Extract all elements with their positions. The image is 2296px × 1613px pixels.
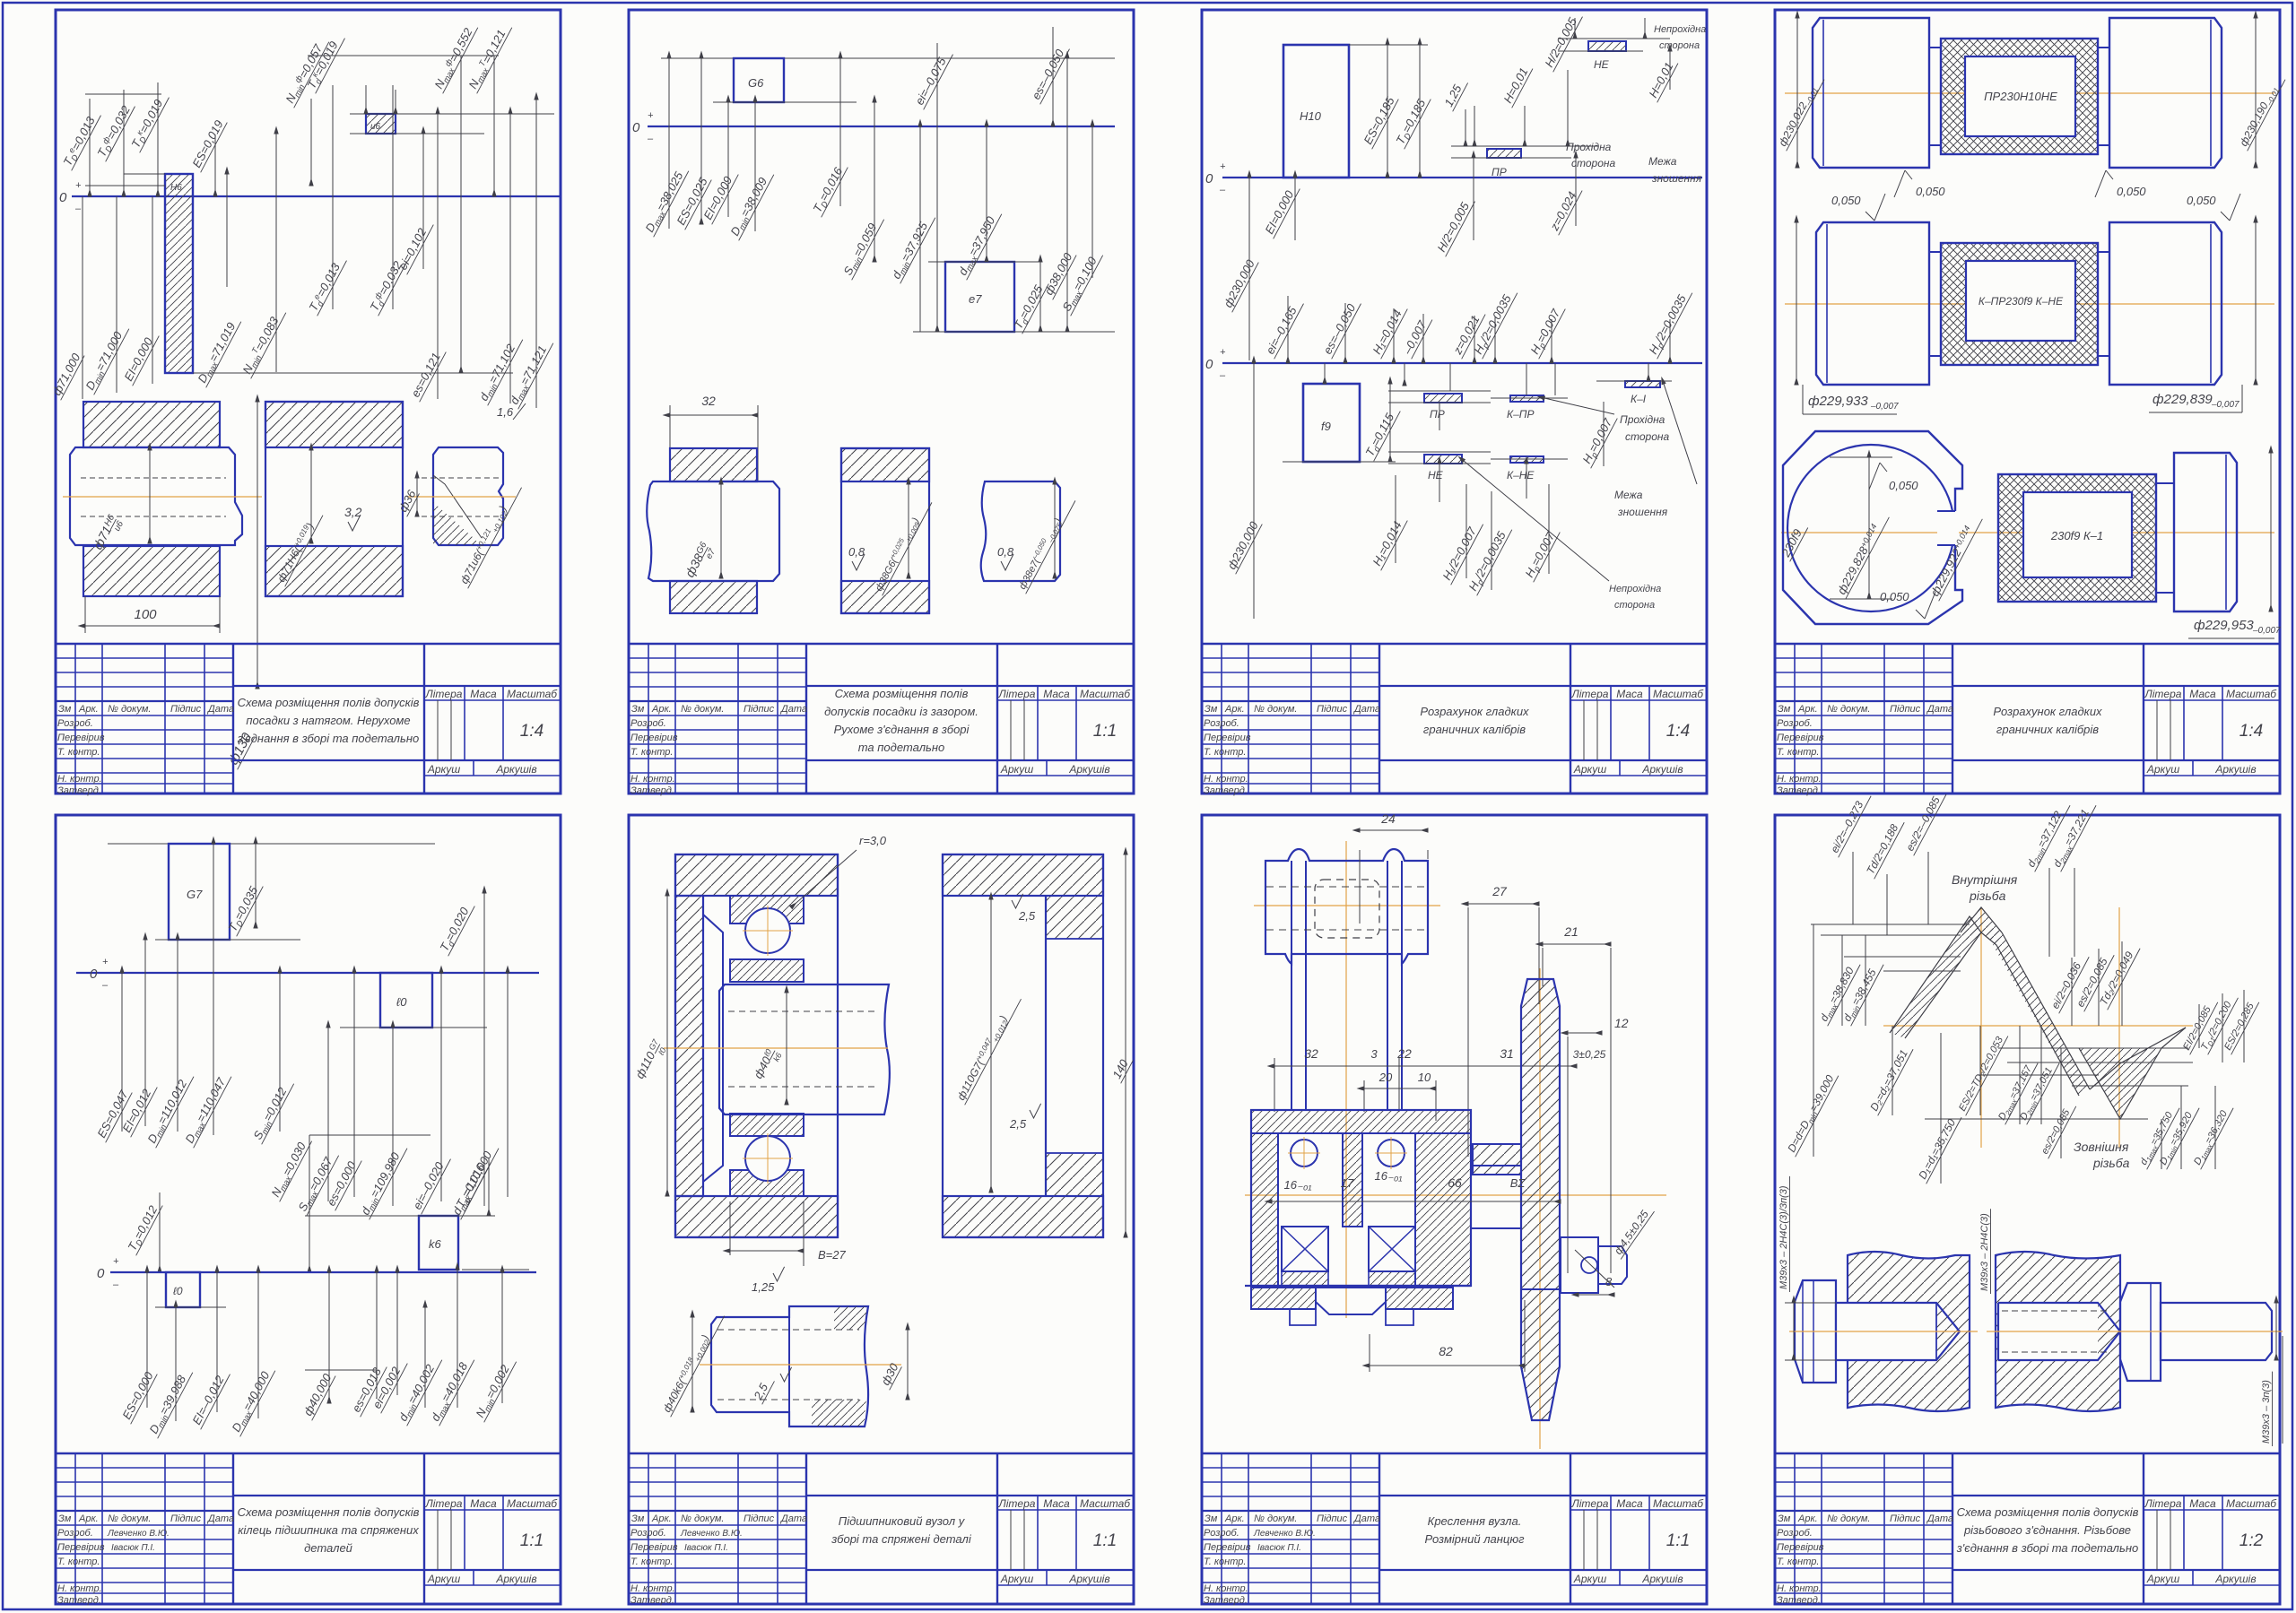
svg-text:Літера: Літера xyxy=(998,688,1036,700)
svg-text:0,050: 0,050 xyxy=(1831,194,1861,207)
svg-text:К–ПР: К–ПР xyxy=(1507,408,1534,421)
svg-text:Дата: Дата xyxy=(206,1513,234,1524)
svg-text:Т. контр.: Т. контр. xyxy=(1204,747,1246,758)
svg-text:Затверд.: Затверд. xyxy=(1777,785,1821,796)
svg-text:Прохідна: Прохідна xyxy=(1620,413,1665,426)
svg-text:Масштаб: Масштаб xyxy=(507,688,558,700)
svg-text:Зм: Зм xyxy=(1205,704,1218,715)
svg-text:Літера: Літера xyxy=(2144,688,2182,700)
svg-text:Н10: Н10 xyxy=(1300,109,1322,123)
svg-text:Масштаб: Масштаб xyxy=(1080,1497,1131,1510)
svg-text:–: – xyxy=(74,204,82,214)
svg-text:Дата: Дата xyxy=(206,704,234,715)
svg-text:2,5: 2,5 xyxy=(1009,1117,1027,1131)
svg-text:Н. контр.: Н. контр. xyxy=(1204,1583,1248,1594)
svg-text:Дата: Дата xyxy=(779,1513,807,1524)
svg-text:Аркушів: Аркушів xyxy=(1641,763,1683,776)
svg-text:Межа: Межа xyxy=(1648,155,1677,168)
svg-text:66: 66 xyxy=(1448,1175,1462,1190)
svg-text:НЕ: НЕ xyxy=(1594,58,1610,71)
svg-text:Левченко В.Ю.: Левченко В.Ю. xyxy=(1253,1529,1316,1539)
svg-text:Аркуш: Аркуш xyxy=(2146,763,2179,776)
svg-text:з'єднання в зборі та подетальн: з'єднання в зборі та подетально xyxy=(237,732,419,745)
svg-text:27: 27 xyxy=(1492,884,1508,898)
svg-text:Підпис: Підпис xyxy=(1890,1513,1921,1524)
svg-text:Літера: Літера xyxy=(1571,1497,1609,1510)
svg-text:Т. контр.: Т. контр. xyxy=(1204,1557,1246,1567)
svg-text:Розрахунок гладких: Розрахунок гладких xyxy=(1420,705,1529,718)
svg-text:Дата: Дата xyxy=(779,704,807,715)
svg-text:Розроб.: Розроб. xyxy=(1204,718,1239,729)
svg-text:0,050: 0,050 xyxy=(2117,185,2146,198)
svg-text:0,8: 0,8 xyxy=(848,545,865,559)
svg-text:Арк.: Арк. xyxy=(1224,1513,1245,1524)
svg-text:Перевірив: Перевірив xyxy=(1204,733,1251,743)
svg-text:Левченко В.Ю.: Левченко В.Ю. xyxy=(107,1529,170,1539)
svg-text:Розрахунок гладких: Розрахунок гладких xyxy=(1993,705,2102,718)
svg-text:ф229,839: ф229,839 xyxy=(2152,392,2213,407)
svg-text:–: – xyxy=(1219,370,1226,381)
svg-text:Т. контр.: Т. контр. xyxy=(1777,1557,1819,1567)
svg-text:16₋₀₁: 16₋₀₁ xyxy=(1284,1178,1312,1192)
svg-text:Маса: Маса xyxy=(2189,1497,2216,1510)
svg-text:+: + xyxy=(648,110,654,121)
svg-text:Н. контр.: Н. контр. xyxy=(631,1583,675,1594)
svg-text:В=27: В=27 xyxy=(818,1248,846,1262)
svg-text:–: – xyxy=(112,1279,119,1290)
svg-text:Розроб.: Розроб. xyxy=(631,1528,666,1539)
svg-text:+: + xyxy=(1220,347,1226,358)
svg-text:граничних калібрів: граничних калібрів xyxy=(1996,723,2099,736)
svg-text:16₋₀₁: 16₋₀₁ xyxy=(1375,1169,1403,1183)
svg-text:0: 0 xyxy=(59,190,67,205)
svg-text:17: 17 xyxy=(1341,1176,1354,1190)
svg-text:Підпис: Підпис xyxy=(1890,704,1921,715)
svg-text:№ докум.: № докум. xyxy=(108,704,151,715)
svg-text:Рухоме з'єднання в зборі: Рухоме з'єднання в зборі xyxy=(834,723,970,736)
svg-text:230f9 К–1: 230f9 К–1 xyxy=(2050,529,2103,542)
svg-text:Аркуш: Аркуш xyxy=(2146,1573,2179,1585)
svg-text:допусків посадки із зазором.: допусків посадки із зазором. xyxy=(824,705,978,718)
svg-text:деталей: деталей xyxy=(304,1541,352,1555)
svg-text:0,8: 0,8 xyxy=(997,545,1014,559)
svg-text:ВΣ: ВΣ xyxy=(1510,1176,1526,1190)
svg-text:0: 0 xyxy=(97,1266,105,1281)
svg-text:Аркушів: Аркушів xyxy=(1641,1573,1683,1585)
svg-text:зборі та спряжені деталі: зборі та спряжені деталі xyxy=(831,1532,972,1546)
svg-text:граничних калібрів: граничних калібрів xyxy=(1423,723,1526,736)
svg-text:Аркуш: Аркуш xyxy=(1573,763,1606,776)
svg-text:Підпис: Підпис xyxy=(744,1513,775,1524)
svg-text:ф229,933: ф229,933 xyxy=(1808,394,1868,409)
svg-text:Маса: Маса xyxy=(1043,688,1070,700)
svg-text:Івасюк П.І.: Івасюк П.І. xyxy=(1257,1543,1301,1553)
svg-text:Затверд.: Затверд. xyxy=(631,785,674,796)
svg-text:сторона: сторона xyxy=(1659,40,1700,51)
svg-text:82: 82 xyxy=(1439,1344,1453,1358)
svg-text:посадки з натягом. Нерухоме: посадки з натягом. Нерухоме xyxy=(246,714,410,727)
svg-text:Затверд.: Затверд. xyxy=(1204,785,1248,796)
svg-text:М39х3 – 3п(3): М39х3 – 3п(3) xyxy=(2261,1380,2272,1444)
svg-text:кілець підшипника та спряжених: кілець підшипника та спряжених xyxy=(238,1523,419,1537)
svg-text:Н. контр.: Н. контр. xyxy=(57,1583,102,1594)
svg-text:Розмірний ланцюг: Розмірний ланцюг xyxy=(1424,1532,1525,1546)
svg-text:ПР: ПР xyxy=(1492,166,1507,178)
svg-text:№ докум.: № докум. xyxy=(1827,1513,1870,1524)
svg-text:100: 100 xyxy=(134,607,157,622)
svg-text:№ докум.: № докум. xyxy=(681,704,724,715)
svg-text:Аркушів: Аркушів xyxy=(2214,1573,2256,1585)
svg-text:3: 3 xyxy=(1370,1047,1378,1061)
svg-text:ПР230Н10НЕ: ПР230Н10НЕ xyxy=(1984,90,2057,103)
svg-text:10: 10 xyxy=(1418,1071,1431,1084)
svg-text:К–І: К–І xyxy=(1631,393,1647,405)
svg-text:Маса: Маса xyxy=(470,688,497,700)
svg-text:Зм: Зм xyxy=(1778,704,1791,715)
svg-text:К–НЕ: К–НЕ xyxy=(1507,469,1535,481)
svg-text:Масштаб: Масштаб xyxy=(1653,1497,1704,1510)
svg-text:№ докум.: № докум. xyxy=(1254,1513,1297,1524)
svg-text:0: 0 xyxy=(1205,357,1213,372)
svg-text:1:1: 1:1 xyxy=(1093,722,1117,741)
svg-text:Арк.: Арк. xyxy=(651,1513,672,1524)
svg-text:Зм: Зм xyxy=(58,704,72,715)
svg-text:0,050: 0,050 xyxy=(1916,185,1945,198)
svg-text:–0,007: –0,007 xyxy=(1870,402,1899,412)
svg-text:Дата: Дата xyxy=(1352,1513,1380,1524)
svg-text:різьба: різьба xyxy=(2092,1156,2130,1170)
svg-text:Перевірив: Перевірив xyxy=(1777,733,1824,743)
svg-text:Підпис: Підпис xyxy=(170,704,202,715)
svg-text:21: 21 xyxy=(1563,924,1578,939)
svg-text:Перевірив: Перевірив xyxy=(1204,1542,1251,1553)
svg-text:Зм: Зм xyxy=(631,1513,645,1524)
svg-text:Масштаб: Масштаб xyxy=(1653,688,1704,700)
svg-text:Зм: Зм xyxy=(631,704,645,715)
svg-text:№ докум.: № докум. xyxy=(108,1513,151,1524)
svg-text:та подетально: та подетально xyxy=(858,741,945,754)
svg-text:Літера: Літера xyxy=(425,1497,463,1510)
svg-text:№ докум.: № докум. xyxy=(1254,704,1297,715)
svg-text:Маса: Маса xyxy=(1616,1497,1643,1510)
svg-text:сторона: сторона xyxy=(1571,157,1615,169)
svg-text:24: 24 xyxy=(1380,811,1396,826)
svg-text:Т. контр.: Т. контр. xyxy=(631,747,673,758)
svg-text:Підшипниковий вузол у: Підшипниковий вузол у xyxy=(839,1514,966,1528)
svg-text:сторона: сторона xyxy=(1625,430,1669,443)
svg-text:Н. контр.: Н. контр. xyxy=(631,774,675,785)
svg-text:Т. контр.: Т. контр. xyxy=(57,747,100,758)
svg-text:20: 20 xyxy=(1378,1071,1393,1084)
svg-text:0,050: 0,050 xyxy=(1880,590,1909,603)
svg-text:Н. контр.: Н. контр. xyxy=(1777,1583,1822,1594)
svg-text:Аркуш: Аркуш xyxy=(427,1573,460,1585)
svg-text:Арк.: Арк. xyxy=(1797,704,1818,715)
svg-text:№ докум.: № докум. xyxy=(1827,704,1870,715)
svg-text:Левченко В.Ю.: Левченко В.Ю. xyxy=(680,1529,743,1539)
svg-text:Літера: Літера xyxy=(998,1497,1036,1510)
svg-text:Івасюк П.І.: Івасюк П.І. xyxy=(684,1543,728,1553)
svg-text:Н. контр.: Н. контр. xyxy=(1204,774,1248,785)
svg-text:Дата: Дата xyxy=(1352,704,1380,715)
svg-text:k6: k6 xyxy=(429,1237,442,1251)
svg-text:Маса: Маса xyxy=(1616,688,1643,700)
svg-text:Розроб.: Розроб. xyxy=(57,1528,93,1539)
svg-text:Схема розміщення полів допускі: Схема розміщення полів допусків xyxy=(1957,1505,2139,1519)
svg-text:е7: е7 xyxy=(969,292,982,306)
svg-text:31: 31 xyxy=(1500,1046,1514,1061)
svg-text:Аркуш: Аркуш xyxy=(427,763,460,776)
svg-text:ℓ0: ℓ0 xyxy=(396,995,407,1009)
svg-text:Аркушів: Аркушів xyxy=(2214,763,2256,776)
svg-text:Підпис: Підпис xyxy=(1317,704,1348,715)
svg-text:Івасюк П.І.: Івасюк П.І. xyxy=(111,1543,155,1553)
svg-text:Аркушів: Аркушів xyxy=(1068,763,1109,776)
svg-text:Т. контр.: Т. контр. xyxy=(631,1557,673,1567)
svg-text:–: – xyxy=(1219,185,1226,195)
svg-text:+: + xyxy=(1220,161,1226,172)
svg-text:Масштаб: Масштаб xyxy=(2226,1497,2277,1510)
svg-text:–0,007: –0,007 xyxy=(2211,400,2239,410)
svg-text:Зм: Зм xyxy=(58,1513,72,1524)
svg-text:різьба: різьба xyxy=(1969,889,2006,903)
svg-text:К–ПР230f9 К–НЕ: К–ПР230f9 К–НЕ xyxy=(1979,295,2064,308)
svg-text:Літера: Літера xyxy=(2144,1497,2182,1510)
svg-text:Арк.: Арк. xyxy=(651,704,672,715)
svg-text:Н6: Н6 xyxy=(170,183,182,193)
svg-text:М39х3 – 2Н4С(3)/3п(3): М39х3 – 2Н4С(3)/3п(3) xyxy=(1779,1185,1789,1289)
svg-text:0,050: 0,050 xyxy=(1889,479,1918,492)
svg-text:1:4: 1:4 xyxy=(520,722,544,741)
svg-text:ПР: ПР xyxy=(1430,408,1445,421)
svg-text:Зовнішня: Зовнішня xyxy=(2074,1140,2129,1154)
svg-text:Перевірив: Перевірив xyxy=(1777,1542,1824,1553)
svg-text:–: – xyxy=(101,980,109,991)
svg-text:з'єднання в зборі та подетальн: з'єднання в зборі та подетально xyxy=(1956,1541,2138,1555)
svg-text:Дата: Дата xyxy=(1926,1513,1953,1524)
svg-text:Масштаб: Масштаб xyxy=(1080,688,1131,700)
svg-text:Перевірив: Перевірив xyxy=(631,1542,678,1553)
svg-text:f9: f9 xyxy=(1321,420,1331,433)
svg-text:Арк.: Арк. xyxy=(78,704,99,715)
svg-text:Літера: Літера xyxy=(1571,688,1609,700)
svg-text:Розроб.: Розроб. xyxy=(57,718,93,729)
svg-text:r=3,0: r=3,0 xyxy=(859,834,887,847)
svg-text:0: 0 xyxy=(90,967,98,982)
svg-text:Аркушів: Аркушів xyxy=(495,763,536,776)
svg-text:М39х3 – 2Н4С(3): М39х3 – 2Н4С(3) xyxy=(1979,1213,1990,1291)
svg-text:0: 0 xyxy=(1205,171,1213,186)
svg-text:1,25: 1,25 xyxy=(752,1280,775,1294)
svg-text:зношення: зношення xyxy=(1651,172,1702,185)
svg-text:Схема розміщення полів: Схема розміщення полів xyxy=(835,687,969,700)
svg-text:1,6: 1,6 xyxy=(497,405,514,419)
svg-text:Аркуш: Аркуш xyxy=(1000,1573,1033,1585)
svg-text:Розроб.: Розроб. xyxy=(1777,1528,1813,1539)
svg-text:Затверд.: Затверд. xyxy=(57,785,101,796)
svg-text:ℓ0: ℓ0 xyxy=(173,1285,183,1297)
svg-text:Аркушів: Аркушів xyxy=(1068,1573,1109,1585)
svg-text:Н. контр.: Н. контр. xyxy=(57,774,102,785)
svg-text:–0,007: –0,007 xyxy=(2252,626,2281,636)
svg-text:32: 32 xyxy=(701,394,716,408)
svg-text:Арк.: Арк. xyxy=(1797,1513,1818,1524)
svg-text:G7: G7 xyxy=(187,888,203,901)
svg-text:Маса: Маса xyxy=(2189,688,2216,700)
svg-text:Підпис: Підпис xyxy=(744,704,775,715)
svg-text:Затверд.: Затверд. xyxy=(1777,1595,1821,1606)
svg-text:Аркуш: Аркуш xyxy=(1000,763,1033,776)
svg-text:+: + xyxy=(113,1256,119,1267)
svg-text:Маса: Маса xyxy=(1043,1497,1070,1510)
svg-text:+: + xyxy=(75,180,82,191)
svg-text:8: 8 xyxy=(1605,1275,1613,1288)
svg-text:№ докум.: № докум. xyxy=(681,1513,724,1524)
svg-text:u6: u6 xyxy=(370,122,381,132)
svg-text:Розроб.: Розроб. xyxy=(1204,1528,1239,1539)
svg-text:Межа: Межа xyxy=(1614,489,1643,501)
svg-text:Креслення вузла.: Креслення вузла. xyxy=(1428,1514,1522,1528)
svg-text:Дата: Дата xyxy=(1926,704,1953,715)
svg-text:Літера: Літера xyxy=(425,688,463,700)
svg-text:Непрохідна: Непрохідна xyxy=(1609,584,1661,594)
svg-text:Т. контр.: Т. контр. xyxy=(1777,747,1819,758)
svg-text:Затверд.: Затверд. xyxy=(57,1595,101,1606)
svg-text:сторона: сторона xyxy=(1614,600,1655,611)
svg-text:Прохідна: Прохідна xyxy=(1566,141,1612,153)
svg-text:НЕ: НЕ xyxy=(1428,469,1444,481)
svg-text:ф229,953: ф229,953 xyxy=(2194,618,2254,633)
svg-text:Перевірив: Перевірив xyxy=(57,1542,105,1553)
svg-text:0: 0 xyxy=(632,120,640,135)
svg-text:1:2: 1:2 xyxy=(2239,1531,2264,1550)
svg-text:Перевірив: Перевірив xyxy=(57,733,105,743)
svg-text:Затверд.: Затверд. xyxy=(631,1595,674,1606)
svg-text:Зм: Зм xyxy=(1778,1513,1791,1524)
svg-text:Т. контр.: Т. контр. xyxy=(57,1557,100,1567)
svg-text:Схема розміщення полів допускі: Схема розміщення полів допусків xyxy=(238,1505,420,1519)
svg-text:0,050: 0,050 xyxy=(2187,194,2216,207)
svg-text:Підпис: Підпис xyxy=(170,1513,202,1524)
svg-text:Арк.: Арк. xyxy=(1224,704,1245,715)
svg-text:різьбового з'єднання. Різьбове: різьбового з'єднання. Різьбове xyxy=(1963,1523,2131,1537)
svg-text:1:1: 1:1 xyxy=(1093,1531,1117,1550)
svg-text:Внутрішня: Внутрішня xyxy=(1952,872,2018,887)
svg-text:12: 12 xyxy=(1614,1016,1629,1030)
svg-text:1:1: 1:1 xyxy=(520,1531,544,1550)
svg-text:Розроб.: Розроб. xyxy=(1777,718,1813,729)
svg-text:Перевірив: Перевірив xyxy=(631,733,678,743)
svg-text:1:4: 1:4 xyxy=(2239,722,2263,741)
svg-text:Підпис: Підпис xyxy=(1317,1513,1348,1524)
svg-text:зношення: зношення xyxy=(1617,506,1668,518)
svg-text:Зм: Зм xyxy=(1205,1513,1218,1524)
svg-text:Арк.: Арк. xyxy=(78,1513,99,1524)
svg-text:Схема розміщення полів допускі: Схема розміщення полів допусків xyxy=(238,696,420,709)
svg-text:–: – xyxy=(647,134,654,144)
svg-text:32: 32 xyxy=(1304,1046,1318,1061)
svg-text:Маса: Маса xyxy=(470,1497,497,1510)
svg-text:1:1: 1:1 xyxy=(1666,1531,1690,1550)
svg-text:Масштаб: Масштаб xyxy=(2226,688,2277,700)
svg-text:G6: G6 xyxy=(748,76,764,90)
svg-text:3±0,25: 3±0,25 xyxy=(1573,1048,1606,1061)
svg-text:Аркуш: Аркуш xyxy=(1573,1573,1606,1585)
svg-text:Н. контр.: Н. контр. xyxy=(1777,774,1822,785)
svg-text:Непрохідна: Непрохідна xyxy=(1654,24,1706,35)
svg-text:Затверд.: Затверд. xyxy=(1204,1595,1248,1606)
svg-text:Масштаб: Масштаб xyxy=(507,1497,558,1510)
svg-text:+: + xyxy=(102,957,109,967)
svg-text:Розроб.: Розроб. xyxy=(631,718,666,729)
svg-text:2,5: 2,5 xyxy=(1018,909,1036,923)
svg-text:Аркушів: Аркушів xyxy=(495,1573,536,1585)
svg-text:1:4: 1:4 xyxy=(1666,722,1690,741)
